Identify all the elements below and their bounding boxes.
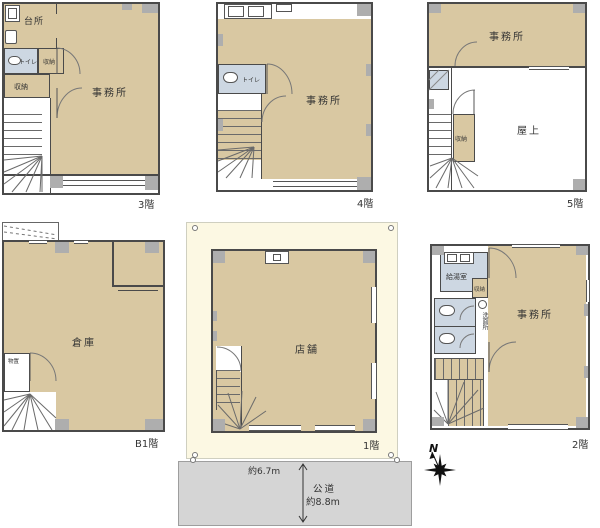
sink-icon	[447, 254, 457, 262]
boundary-marker-icon	[190, 457, 196, 463]
stove-icon	[460, 254, 470, 262]
pillar	[218, 119, 223, 131]
door-arc-icon	[460, 306, 474, 320]
stair-fan-icon	[218, 144, 261, 179]
room-label-office: 事務所	[92, 84, 128, 99]
pillar	[50, 176, 63, 188]
door-arc-icon	[453, 90, 475, 114]
floor-plan-5f: 事務所 屋上 収納 5階	[427, 2, 587, 192]
door-arc-icon	[455, 42, 477, 66]
room-label-storage: 収納	[43, 57, 55, 66]
room-label-office: 事務所	[306, 92, 342, 107]
stair-fan-icon	[430, 156, 478, 188]
ramp-dash-icon	[3, 223, 58, 239]
pillar	[584, 304, 588, 316]
pillar	[213, 419, 225, 431]
toilet-icon	[439, 333, 455, 344]
pillar	[432, 246, 444, 255]
room-label-storage: 収納	[14, 82, 28, 92]
boundary-marker-icon	[192, 225, 198, 231]
pillar	[142, 4, 158, 13]
window	[249, 425, 301, 431]
pillar	[366, 64, 371, 76]
pillar	[363, 251, 375, 263]
pillar	[573, 4, 585, 13]
pillar	[432, 417, 444, 426]
pillar	[145, 419, 163, 430]
floor-label-4f: 4階	[357, 195, 373, 210]
room-label-washroom: 洗面所	[480, 312, 489, 330]
pillar	[363, 419, 375, 431]
window	[29, 240, 47, 244]
floor-label-2f: 2階	[572, 436, 588, 451]
road-width-label: 約8.8m	[306, 494, 340, 508]
door-arc-icon	[266, 64, 292, 94]
door-arc-icon	[30, 353, 56, 381]
window	[586, 280, 590, 302]
room-label-office: 事務所	[489, 28, 525, 43]
boundary-marker-icon	[394, 457, 400, 463]
lot-1f: 店舗 1階	[186, 222, 398, 459]
hatch-icon	[429, 70, 449, 90]
floor-plan-b1: 倉庫 物置 B1階	[2, 222, 165, 432]
compass: N	[420, 442, 470, 512]
door-arc-icon	[56, 48, 80, 74]
room-label-storage: 収納	[455, 134, 467, 143]
stair-fan-icon	[4, 392, 56, 430]
pillar	[429, 99, 434, 109]
pillar	[218, 34, 223, 46]
room-label-shop: 店舗	[295, 341, 319, 356]
window	[371, 287, 377, 323]
pillar	[55, 242, 69, 253]
floor-label-5f: 5階	[567, 195, 583, 210]
floor-plan-1f: 店舗	[211, 249, 377, 433]
window	[529, 66, 569, 70]
window	[371, 363, 377, 399]
stove-icon	[248, 6, 264, 17]
room-label-kitchen: 台所	[24, 14, 44, 27]
road-area	[178, 461, 412, 526]
pillar	[122, 4, 132, 10]
room-label-storage: 収納	[474, 285, 485, 293]
equipment-icon	[276, 4, 292, 12]
window	[62, 180, 146, 186]
stairs-5f	[429, 114, 451, 162]
window	[315, 425, 355, 431]
room-label-toilet: トイレ	[19, 57, 37, 66]
stairs-upper-2f	[434, 358, 484, 380]
pillar	[357, 177, 371, 190]
sink-icon	[228, 6, 244, 17]
stair-fan-icon	[4, 152, 50, 193]
corner-sink-icon	[478, 300, 487, 309]
floor-plan-4f: トイレ 事務所 4階	[216, 2, 373, 192]
room-label-storeroom: 物置	[8, 357, 19, 365]
pillar	[145, 242, 159, 253]
wall	[112, 285, 163, 287]
wall	[118, 290, 158, 291]
wall	[112, 242, 114, 287]
pillar	[357, 4, 371, 16]
toilet-icon	[439, 305, 455, 316]
pillar	[429, 4, 441, 13]
floor-label-b1: B1階	[135, 435, 158, 450]
window	[74, 240, 88, 244]
floor-label-1f: 1階	[363, 437, 379, 452]
room-label-warehouse: 倉庫	[72, 334, 96, 349]
pillar	[576, 417, 588, 428]
boundary-marker-icon	[388, 225, 394, 231]
wall	[434, 326, 476, 327]
door-arc-icon	[56, 88, 82, 118]
floor-plan-sheet: トイレ 収納 収納 台所 事務所 3階 トイレ	[0, 0, 600, 528]
room-label-kitchenette: 給湯室	[446, 272, 467, 282]
main-box-b1: 倉庫 物置	[2, 240, 165, 432]
room-label-rooftop: 屋上	[517, 122, 541, 137]
compass-rose-icon	[420, 450, 460, 496]
window	[512, 244, 560, 248]
floor-plan-3f: トイレ 収納 収納 台所 事務所 3階	[2, 2, 160, 195]
road-width-arrow-icon	[296, 462, 310, 524]
pillar	[213, 331, 217, 341]
pillar	[55, 419, 69, 430]
door-arc-icon	[217, 347, 241, 371]
pillar	[576, 246, 588, 255]
equipment-inner-icon	[273, 254, 281, 261]
toilet-icon	[223, 72, 238, 83]
sink-icon	[5, 30, 17, 44]
wall	[56, 4, 57, 14]
room-label-office: 事務所	[517, 306, 553, 321]
pillar	[145, 176, 158, 190]
pillar	[213, 311, 217, 321]
door-arc-icon	[262, 96, 286, 122]
pillar	[366, 124, 371, 136]
door-arc-icon	[488, 248, 516, 278]
floor-label-3f: 3階	[138, 196, 154, 211]
wall	[56, 38, 57, 48]
door-arc-icon	[488, 342, 516, 372]
pillar	[584, 366, 588, 378]
window	[508, 424, 568, 430]
boundary-marker-icon	[388, 452, 394, 458]
stove-grid-icon	[8, 8, 17, 19]
floor-plan-2f: 事務所 給湯室 収納 洗面所 2階	[430, 244, 590, 430]
pillar	[573, 179, 585, 190]
door-arc-icon	[460, 334, 474, 348]
room-label-toilet: トイレ	[242, 75, 260, 84]
window	[273, 181, 361, 187]
pillar	[213, 251, 225, 263]
road-label: 公道	[313, 481, 336, 495]
frontage-dimension: 約6.7m	[248, 464, 280, 477]
